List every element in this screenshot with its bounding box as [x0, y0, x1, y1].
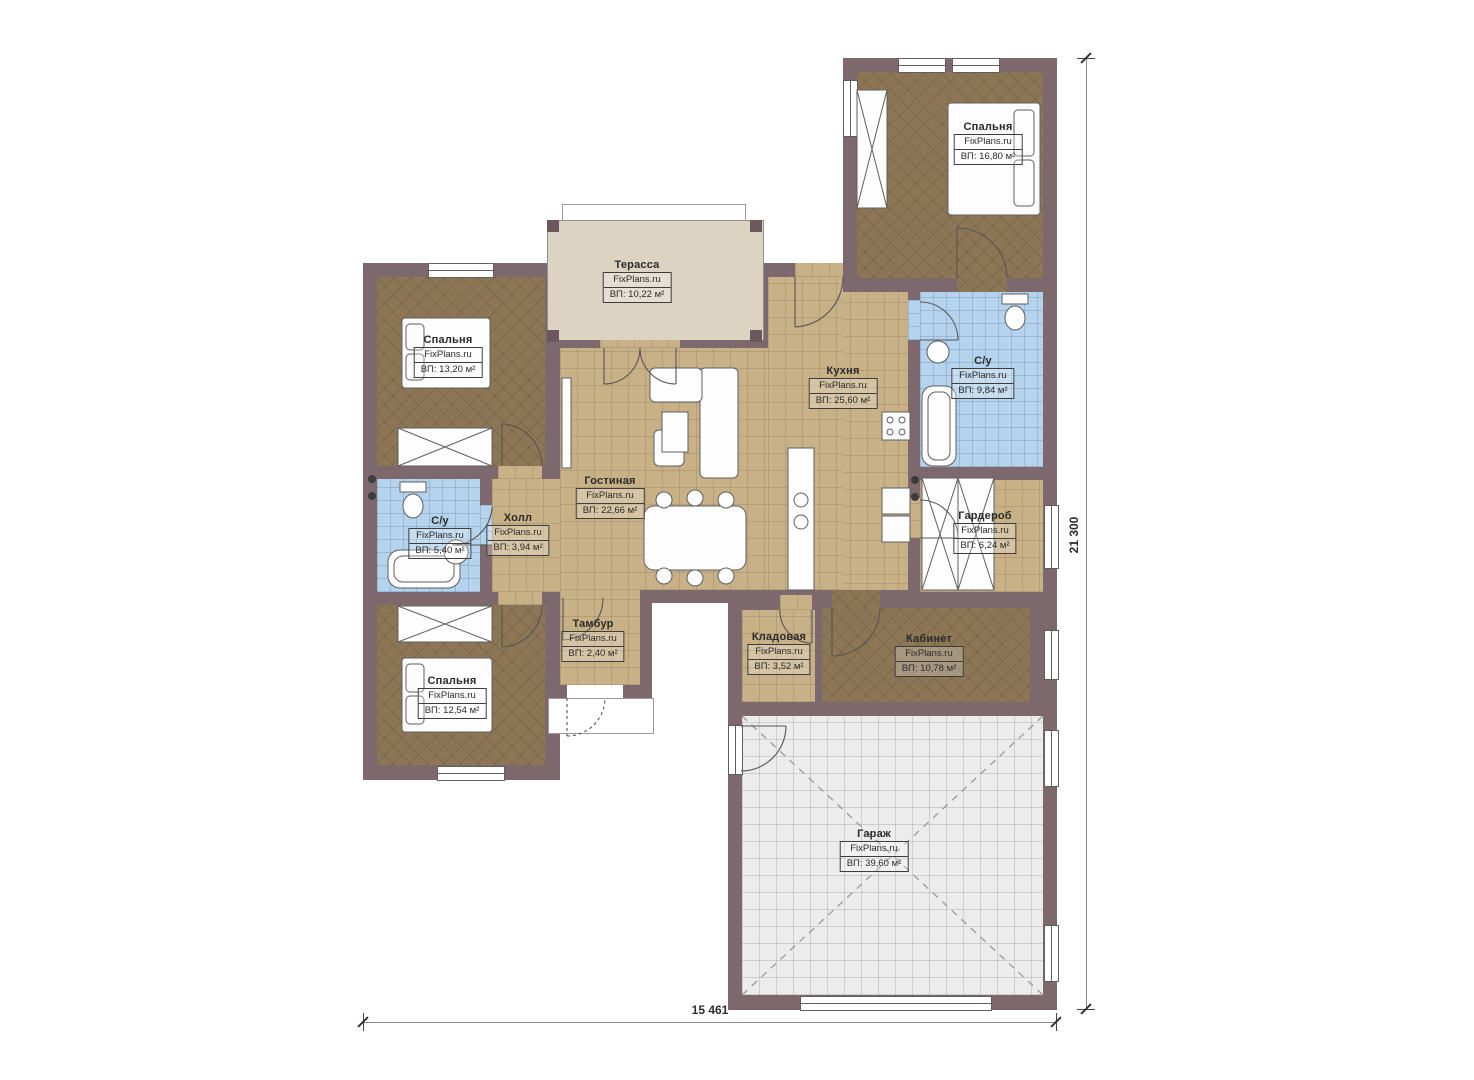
garage-gate [800, 996, 992, 1011]
dimension-height-label: 21 300 [1067, 517, 1081, 554]
room-label-hall: Холл FixPlans.ru ВП: 3,94 м² [486, 512, 549, 556]
window [952, 58, 1000, 73]
room-floor-kitchen [768, 277, 843, 590]
room-label-storage: Кладовая FixPlans.ru ВП: 3,52 м² [747, 631, 810, 675]
vent-icon [911, 476, 919, 484]
window [1044, 630, 1059, 680]
room-label-bedroom-left-bottom: Спальня FixPlans.ru ВП: 12,54 м² [418, 675, 487, 719]
door-opening [795, 263, 843, 277]
dimension-width-label: 15 461 [692, 1003, 729, 1017]
room-label-living: Гостиная FixPlans.ru ВП: 22,66 м² [576, 475, 645, 519]
door-opening [908, 498, 920, 538]
window [898, 58, 946, 73]
window [428, 263, 494, 278]
window [437, 766, 505, 781]
door-opening [780, 595, 812, 610]
door-opening [908, 300, 920, 340]
door-opening [600, 340, 680, 348]
room-label-terrace: Терасса FixPlans.ru ВП: 10,22 м² [603, 259, 672, 303]
door-opening [498, 466, 542, 479]
room-floor-living [560, 348, 768, 590]
window [843, 80, 858, 137]
door-opening [832, 590, 880, 608]
room-label-bedroom-left-top: Спальня FixPlans.ru ВП: 13,20 м² [414, 334, 483, 378]
vent-icon [368, 492, 376, 500]
vent-icon [368, 475, 376, 483]
door-opening [498, 592, 542, 605]
room-label-kitchen: Кухня FixPlans.ru ВП: 25,60 м² [809, 365, 878, 409]
room-floor-kitchen [843, 292, 908, 590]
window [1044, 925, 1059, 982]
door-opening [957, 278, 1007, 292]
room-floor-bedroom-top-right [857, 72, 1043, 278]
room-label-garage: Гараж FixPlans.ru ВП: 39,60 м² [840, 828, 909, 872]
terrace-post [750, 220, 762, 232]
dimension-line-bottom [363, 1022, 1057, 1023]
window [1044, 505, 1059, 569]
room-label-office: Кабинет FixPlans.ru ВП: 10,78 м² [895, 633, 964, 677]
room-label-bathroom-right: С/у FixPlans.ru ВП: 9,84 м² [951, 355, 1014, 399]
room-label-bathroom-left: С/у FixPlans.ru ВП: 5,40 м² [408, 515, 471, 559]
room-label-wardrobe: Гардероб FixPlans.ru ВП: 6,24 м² [953, 510, 1016, 554]
window [1044, 730, 1059, 787]
floor-plan: Спальня FixPlans.ru ВП: 16,80 м² Спальня… [0, 0, 1474, 1080]
side-door [728, 725, 743, 775]
terrace-post [547, 330, 559, 342]
porch-steps [548, 698, 654, 734]
vent-icon [911, 493, 919, 501]
terrace-post [750, 330, 762, 342]
entrance-door-opening [567, 685, 623, 698]
room-label-vestibule: Тамбур FixPlans.ru ВП: 2,40 м² [561, 618, 624, 662]
dimension-line-right [1086, 58, 1087, 1010]
room-label-bedroom-top-right: Спальня FixPlans.ru ВП: 16,80 м² [954, 121, 1023, 165]
terrace-post [547, 220, 559, 232]
